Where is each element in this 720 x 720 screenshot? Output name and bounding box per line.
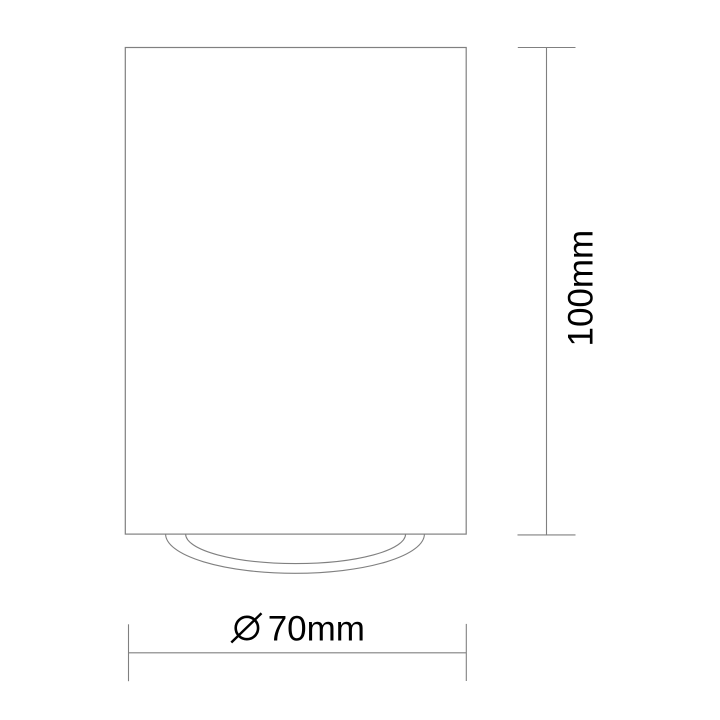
svg-text:70mm: 70mm — [268, 609, 365, 648]
svg-text:100mm: 100mm — [561, 230, 600, 347]
